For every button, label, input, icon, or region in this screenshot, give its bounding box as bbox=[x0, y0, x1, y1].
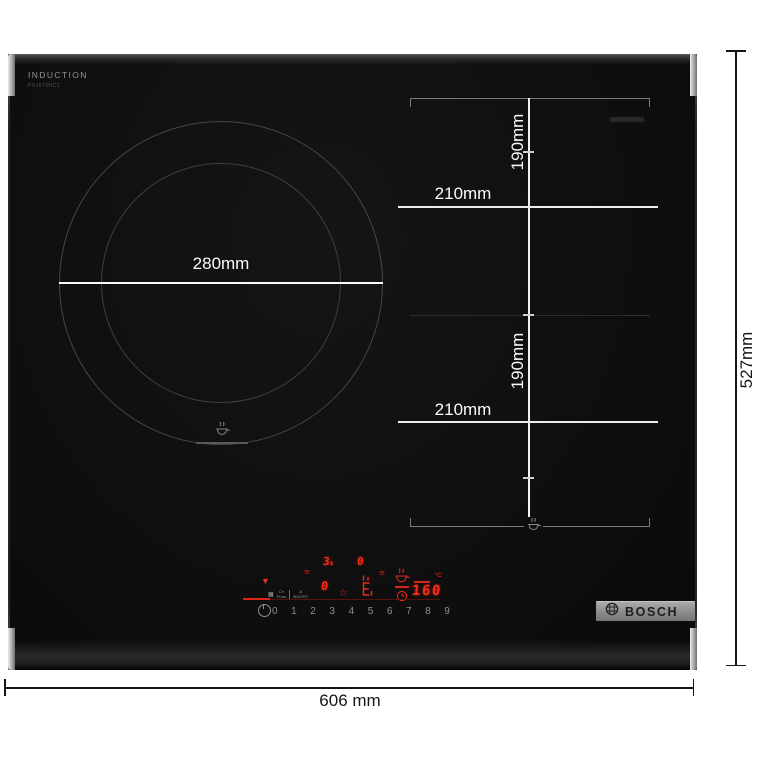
star-icon: ☆ bbox=[339, 589, 348, 599]
level-separator: · bbox=[283, 608, 285, 615]
power-level: 3 bbox=[329, 606, 335, 617]
left-zone-front-tick bbox=[196, 442, 248, 444]
trim-cap-bottom-left bbox=[8, 628, 15, 670]
pan-symbol-left bbox=[214, 421, 230, 442]
pan-symbol-flex bbox=[524, 517, 543, 537]
power-level: 9 bbox=[444, 606, 450, 617]
pan-steam-underline bbox=[395, 586, 409, 588]
temp-display: 160 bbox=[411, 584, 442, 598]
power-level: 6 bbox=[387, 606, 393, 617]
power-level-scale: 0·1·2·3·4·5·6·7·8·9 bbox=[272, 606, 450, 617]
level-separator: · bbox=[417, 608, 419, 615]
power-level: 8 bbox=[425, 606, 431, 617]
led-display-b: 0 bbox=[320, 580, 328, 592]
center-line-tick-2 bbox=[523, 314, 534, 316]
hob-top-sheen bbox=[8, 54, 697, 65]
temp-unit-label: °C bbox=[435, 573, 442, 579]
level-separator: · bbox=[302, 608, 304, 615]
power-level: 1 bbox=[291, 606, 297, 617]
power-level: 2 bbox=[310, 606, 316, 617]
level-separator: · bbox=[341, 608, 343, 615]
flex-top-depth-label: 190mm bbox=[508, 100, 526, 184]
menu-icon-1: ≡ bbox=[304, 569, 310, 578]
hob-front-bevel bbox=[8, 640, 697, 670]
flex-top-width-line bbox=[398, 206, 658, 208]
center-line-tick-3 bbox=[523, 477, 534, 479]
brand-badge: BOSCH bbox=[596, 601, 695, 621]
flex-bottom-depth-label: 190mm bbox=[508, 319, 526, 403]
brand-badge-text: BOSCH bbox=[625, 605, 678, 619]
slider-active-segment bbox=[243, 598, 270, 600]
overall-width-line bbox=[4, 687, 694, 689]
overall-depth-tick-bottom bbox=[726, 665, 746, 667]
flex-zone-center-line bbox=[528, 98, 530, 528]
power-level: 5 bbox=[368, 606, 374, 617]
overall-depth-tick-top bbox=[726, 50, 746, 52]
power-level: 7 bbox=[406, 606, 412, 617]
level-separator: · bbox=[398, 608, 400, 615]
overall-width-tick-left bbox=[4, 679, 6, 696]
slider-track bbox=[270, 599, 440, 600]
hob-right-edge bbox=[695, 54, 697, 670]
grid-icon: ▦ bbox=[268, 592, 274, 598]
menu-icon-2: ≡ bbox=[379, 570, 385, 579]
power-button bbox=[258, 604, 271, 617]
level-separator: · bbox=[379, 608, 381, 615]
pause-display: 3s bbox=[323, 556, 335, 567]
power-level: 4 bbox=[349, 606, 355, 617]
power-level: 0 bbox=[272, 606, 278, 617]
hob-left-edge bbox=[8, 54, 10, 670]
flex-zone-top-bracket bbox=[410, 98, 650, 107]
zone-diameter-line bbox=[59, 282, 383, 284]
heat-indicator-icon: ▼ bbox=[261, 577, 270, 586]
brand-print: INDUCTION bbox=[28, 70, 88, 80]
overall-depth-label: 527mm bbox=[737, 320, 757, 400]
model-print: PXJ675HC1 bbox=[28, 83, 60, 89]
trim-cap-top-right bbox=[690, 54, 697, 96]
led-display-a: 0 bbox=[357, 556, 365, 567]
trim-cap-bottom-right bbox=[690, 628, 697, 670]
level-separator: · bbox=[322, 608, 324, 615]
level-separator: · bbox=[436, 608, 438, 615]
overall-width-tick-right bbox=[693, 679, 695, 696]
trim-cap-top-left bbox=[8, 54, 15, 96]
overall-width-label: 606 mm bbox=[250, 691, 450, 711]
induction-hob: INDUCTION PXJ675HC1 280mm 190mm 210mm 19… bbox=[8, 54, 697, 670]
flex-bottom-width-line bbox=[398, 421, 658, 423]
level-separator: · bbox=[360, 608, 362, 615]
flex-top-width-label: 210mm bbox=[403, 184, 523, 204]
zone-print-mark bbox=[610, 117, 644, 122]
zone-diameter-label: 280mm bbox=[141, 254, 301, 274]
bosch-logo-icon bbox=[605, 602, 619, 621]
flex-bottom-width-label: 210mm bbox=[403, 400, 523, 420]
